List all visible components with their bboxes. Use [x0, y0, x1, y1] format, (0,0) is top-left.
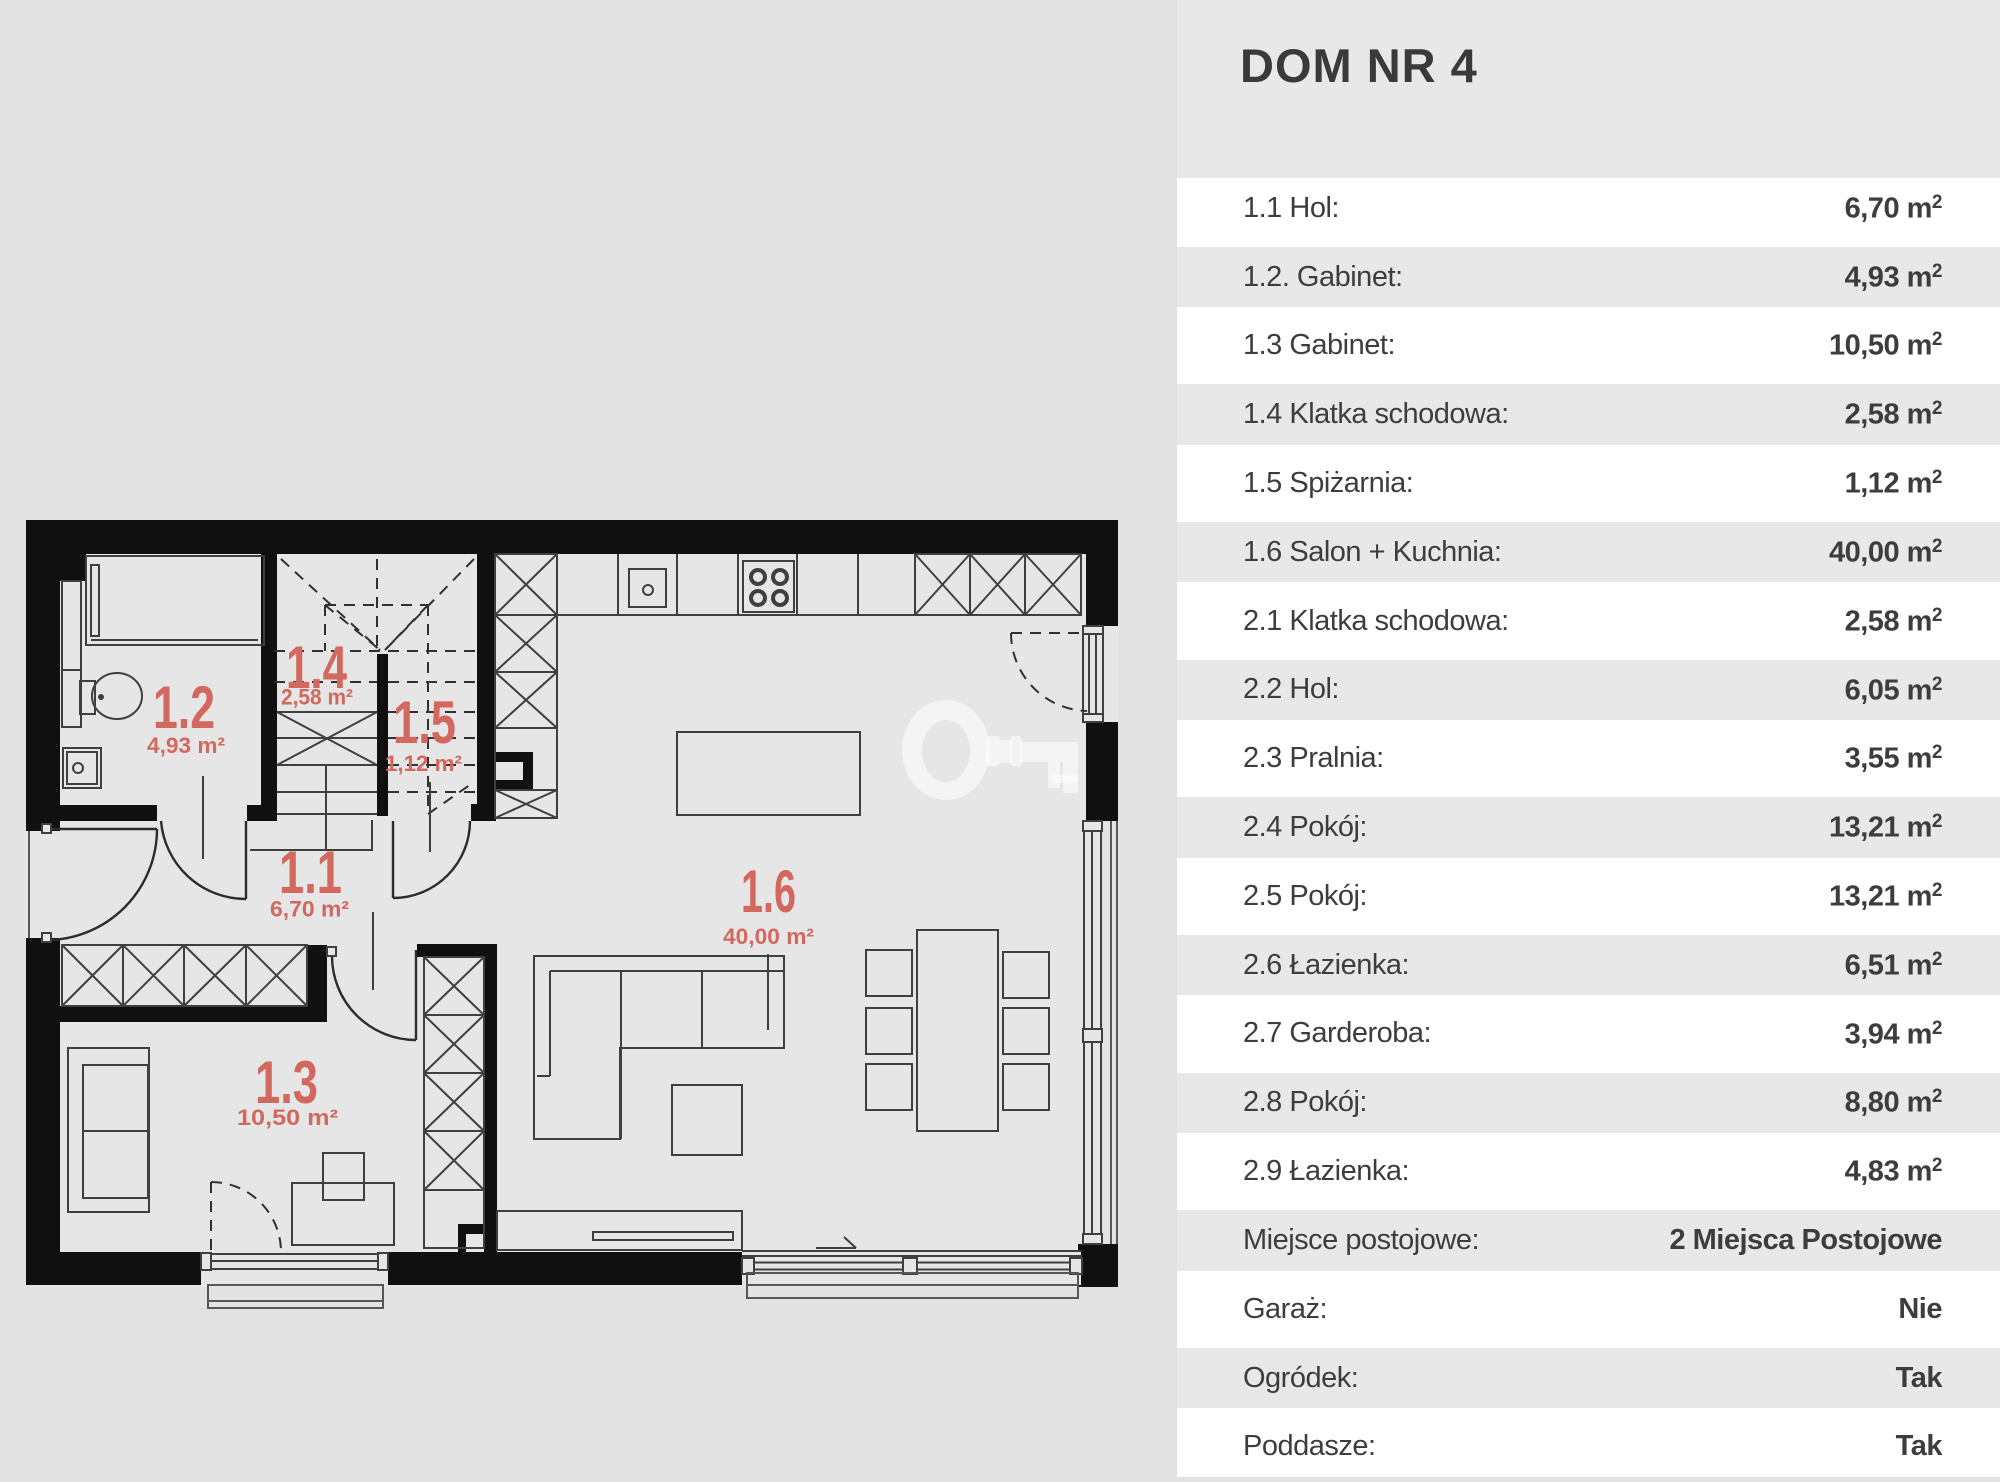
svg-text:2,58 m²: 2,58 m² — [281, 685, 353, 710]
svg-text:6,70 m²: 6,70 m² — [270, 897, 349, 922]
svg-text:1,12 m²: 1,12 m² — [385, 751, 462, 776]
svg-text:1.6: 1.6 — [741, 858, 796, 925]
svg-text:10,50 m²: 10,50 m² — [237, 1105, 338, 1130]
svg-text:40,00 m²: 40,00 m² — [723, 924, 814, 949]
svg-text:1.2: 1.2 — [153, 674, 215, 741]
svg-text:1.5: 1.5 — [393, 689, 456, 756]
svg-text:4,93 m²: 4,93 m² — [147, 733, 225, 758]
